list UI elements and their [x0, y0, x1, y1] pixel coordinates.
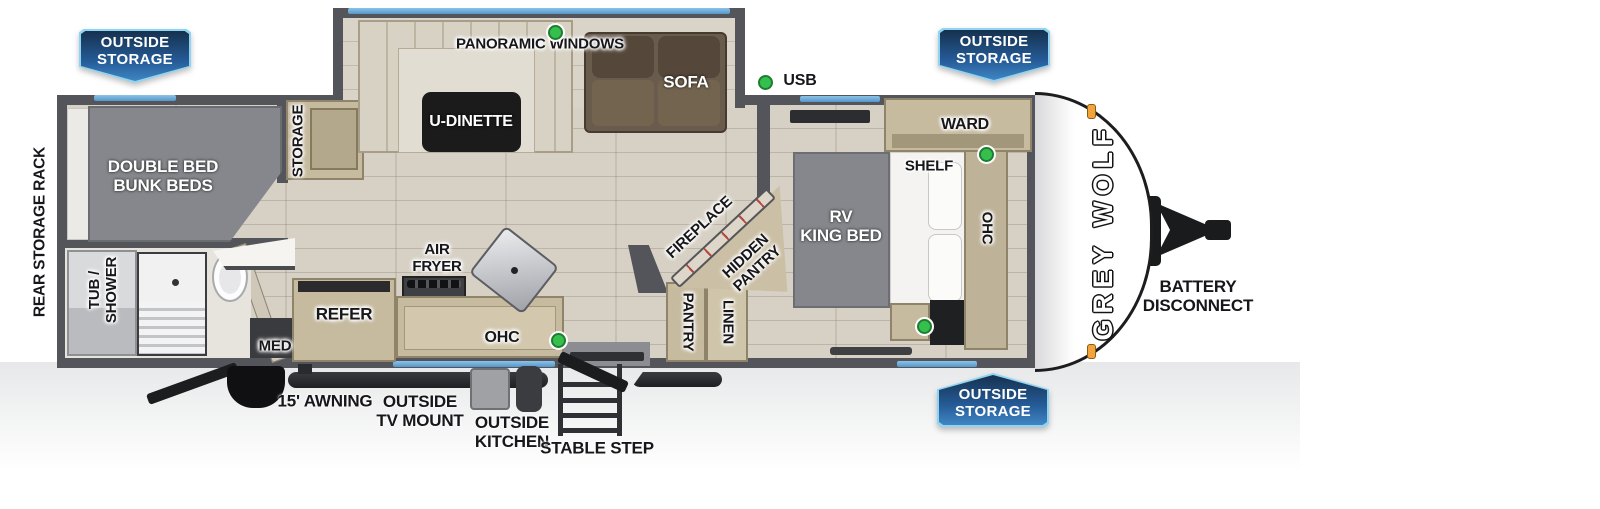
linen-label: LINEN	[719, 300, 736, 344]
pantry-label: PANTRY	[679, 293, 696, 352]
floorplan-scene: GREY WOLF USB PANORAMIC WINDOWS U-DINETT…	[0, 0, 1600, 509]
usb-label: USB	[783, 72, 816, 90]
outside-storage-badge-top-left: OUTSIDESTORAGE	[79, 29, 191, 83]
panoramic-windows-label: PANORAMIC WINDOWS	[456, 37, 624, 54]
window-bedroom-top	[800, 96, 880, 102]
usb-indicator-icon-sofa	[758, 75, 773, 90]
outside-storage-badge-bottom-right: OUTSIDESTORAGE	[937, 373, 1049, 427]
awning-label: 15' AWNING	[278, 391, 373, 410]
sofa-label: SOFA	[663, 72, 709, 91]
bed-pillow-2	[928, 234, 962, 302]
entry-step-pod	[227, 366, 285, 408]
stable-step-rung-3	[558, 413, 622, 418]
ohc-kitchen-label: OHC	[485, 329, 520, 347]
outside-kitchen-tank	[516, 366, 542, 412]
med-label: MED	[259, 339, 292, 356]
u-dinette-label: U-DINETTE	[429, 113, 513, 131]
usb-indicator-icon-nightstand	[917, 319, 932, 334]
stove-burners	[407, 280, 461, 288]
stable-step-rung-2	[558, 398, 622, 403]
stable-step-label: STABLE STEP	[540, 438, 654, 457]
awning-roller-right	[632, 372, 722, 387]
outside-kitchen-unit	[470, 368, 510, 410]
outside-tv-mount-label: OUTSIDETV MOUNT	[376, 392, 463, 430]
outside-kitchen-label: OUTSIDEKITCHEN	[475, 413, 549, 451]
awning-bracket	[298, 364, 312, 374]
shelf-label: SHELF	[905, 159, 953, 176]
kitchen-counter-inner	[404, 306, 556, 350]
entry-step-rail	[146, 362, 239, 405]
window-slideout-top	[348, 8, 730, 14]
shower-drain	[172, 279, 179, 286]
shower-door	[137, 252, 207, 356]
ohc-bedroom-label: OHC	[978, 212, 995, 245]
battery-disconnect-label: BATTERYDISCONNECT	[1143, 277, 1253, 315]
bedroom-dark-cabinet	[930, 300, 964, 345]
usb-indicator-icon-ward	[979, 147, 994, 162]
wardrobe-front	[892, 134, 1024, 148]
refrigerator-top	[298, 281, 390, 292]
air-fryer-label: AIRFRYER	[412, 242, 461, 276]
refer-label: REFER	[316, 304, 373, 323]
brand-logo: GREY WOLF	[1088, 123, 1118, 340]
marker-light-top	[1087, 104, 1096, 119]
hitch-coupler	[1205, 220, 1231, 240]
window-bunk-top	[94, 95, 176, 101]
window-bedroom-bottom	[897, 361, 977, 367]
rear-storage-rack-label: REAR STORAGE RACK	[31, 147, 48, 317]
stable-step-rung-4	[558, 428, 622, 433]
usb-indicator-icon-counter	[551, 333, 566, 348]
marker-light-bottom	[1087, 344, 1096, 359]
king-bed-label: RVKING BED	[800, 207, 882, 245]
hitch-a-frame	[1156, 203, 1210, 257]
outside-storage-badge-top-right: OUTSIDESTORAGE	[938, 28, 1050, 82]
tub-shower-label: TUB /SHOWER	[87, 257, 121, 323]
bunk-beds-label: DOUBLE BEDBUNK BEDS	[108, 157, 218, 195]
air-fryer-knob	[511, 267, 518, 274]
ohc-bedroom-cabinet	[964, 150, 1008, 350]
usb-indicator-icon-dinette	[548, 25, 563, 40]
bunk-pillow	[67, 108, 90, 240]
sofa-seat-1	[592, 80, 654, 126]
storage-label: STORAGE	[291, 105, 308, 178]
storage-cabinet-panel	[310, 108, 358, 170]
bedroom-tv	[790, 110, 870, 123]
ward-label: WARD	[941, 116, 989, 134]
bedroom-bottom-window	[830, 347, 912, 355]
